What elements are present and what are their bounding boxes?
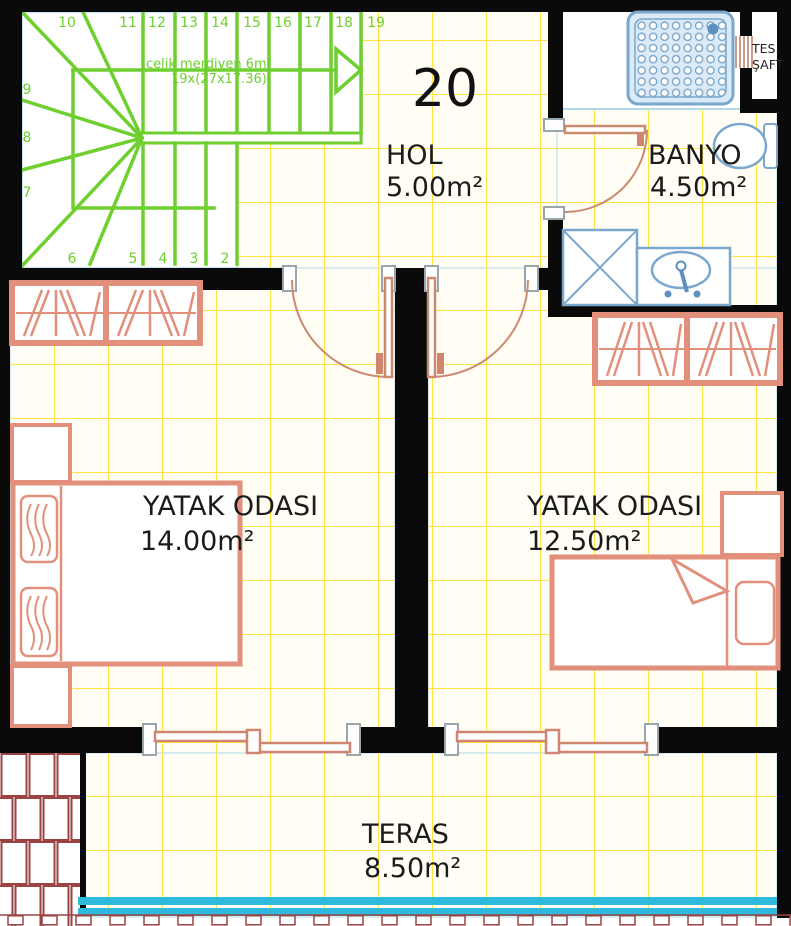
- wall-shaft-c: [740, 99, 777, 113]
- faucet-icon: [677, 262, 686, 271]
- step-number: 9: [23, 82, 32, 98]
- shaft-label-line1: TES.: [751, 41, 779, 56]
- wardrobe-left-bedroom: [12, 283, 200, 343]
- floor-plan-drawing: 10 11 12 13 14 15 16 17 18 19 9 8 7 6 5 …: [0, 0, 791, 926]
- window-panel: [253, 743, 350, 752]
- nightstand: [12, 666, 70, 726]
- step-number: 14: [211, 15, 229, 31]
- door-handle: [637, 134, 644, 146]
- wall-shaft-a: [740, 12, 752, 36]
- shaft-label-line2: ŞAFT: [752, 57, 784, 72]
- stair-note-1: celik merdiven 6m²: [146, 57, 272, 72]
- room-label-terrace: TERAS: [361, 819, 449, 850]
- window-panel: [155, 732, 253, 741]
- faucet-handle: [694, 291, 701, 298]
- window-joint: [546, 730, 559, 753]
- room-label-bedroom-right: YATAK ODASI: [526, 491, 702, 522]
- step-number: 10: [58, 15, 76, 31]
- unit-number-label: 20: [412, 59, 478, 119]
- shower-drain-icon: [708, 24, 719, 35]
- room-label-hol: HOL: [386, 140, 443, 171]
- wall-bath-left-upper: [548, 12, 563, 122]
- jamb: [544, 119, 564, 131]
- jamb: [283, 266, 296, 291]
- step-number: 6: [68, 251, 77, 267]
- room-area-terrace: 8.50m²: [364, 853, 461, 884]
- washing-machine: [563, 230, 637, 305]
- door-leaf: [565, 126, 645, 133]
- wall-left-upper: [0, 0, 22, 270]
- wall-bath-left-lower: [548, 212, 563, 317]
- window-panel: [552, 743, 647, 752]
- step-number: 12: [148, 15, 166, 31]
- wall-terrace-c: [658, 727, 777, 753]
- step-number: 7: [23, 185, 32, 201]
- step-number: 2: [221, 251, 230, 267]
- step-number: 19: [367, 15, 385, 31]
- door-leaf: [385, 278, 392, 377]
- door-handle: [437, 353, 444, 374]
- wall-terrace-left-edge: [80, 753, 86, 917]
- sink: [637, 248, 730, 305]
- door-leaf: [428, 278, 435, 377]
- wall-top: [0, 0, 791, 12]
- step-number: 5: [129, 251, 138, 267]
- room-area-hol: 5.00m²: [386, 172, 483, 203]
- wall-right: [777, 0, 791, 918]
- jamb: [544, 207, 564, 219]
- pillow: [736, 582, 774, 644]
- eave-tile-edge: [0, 915, 791, 926]
- step-number: 11: [119, 15, 137, 31]
- room-area-bedroom-left: 14.00m²: [140, 526, 254, 557]
- wall-terrace-b: [360, 727, 447, 753]
- step-number: 3: [190, 251, 199, 267]
- door-handle: [376, 353, 383, 374]
- room-label-banyo: BANYO: [648, 140, 741, 171]
- faucet-handle: [665, 291, 672, 298]
- wall-terrace-a: [0, 727, 145, 753]
- shower-tray: [628, 12, 733, 104]
- nightstand: [722, 493, 782, 555]
- step-number: 17: [304, 15, 322, 31]
- room-label-bedroom-left: YATAK ODASI: [142, 491, 318, 522]
- step-number: 15: [243, 15, 261, 31]
- wall-bedroom-divider: [395, 268, 428, 753]
- room-area-banyo: 4.50m²: [650, 172, 747, 203]
- wall-shaft-b: [740, 68, 752, 100]
- floor-plan-page: 10 11 12 13 14 15 16 17 18 19 9 8 7 6 5 …: [0, 0, 791, 926]
- step-number: 16: [274, 15, 292, 31]
- window-panel: [457, 732, 552, 741]
- roof-tiles: [0, 753, 80, 926]
- nightstand: [12, 425, 70, 482]
- wardrobe-right-bedroom: [595, 315, 780, 383]
- step-number: 8: [23, 130, 32, 146]
- room-area-bedroom-right: 12.50m²: [527, 526, 641, 557]
- wall-left-lower: [0, 268, 10, 753]
- window-joint: [247, 730, 260, 753]
- step-number: 4: [159, 251, 168, 267]
- stair-center-rail: [138, 133, 361, 143]
- step-number: 13: [180, 15, 198, 31]
- stair-note-2: 19x(27x17.36): [171, 72, 267, 87]
- step-number: 18: [335, 15, 353, 31]
